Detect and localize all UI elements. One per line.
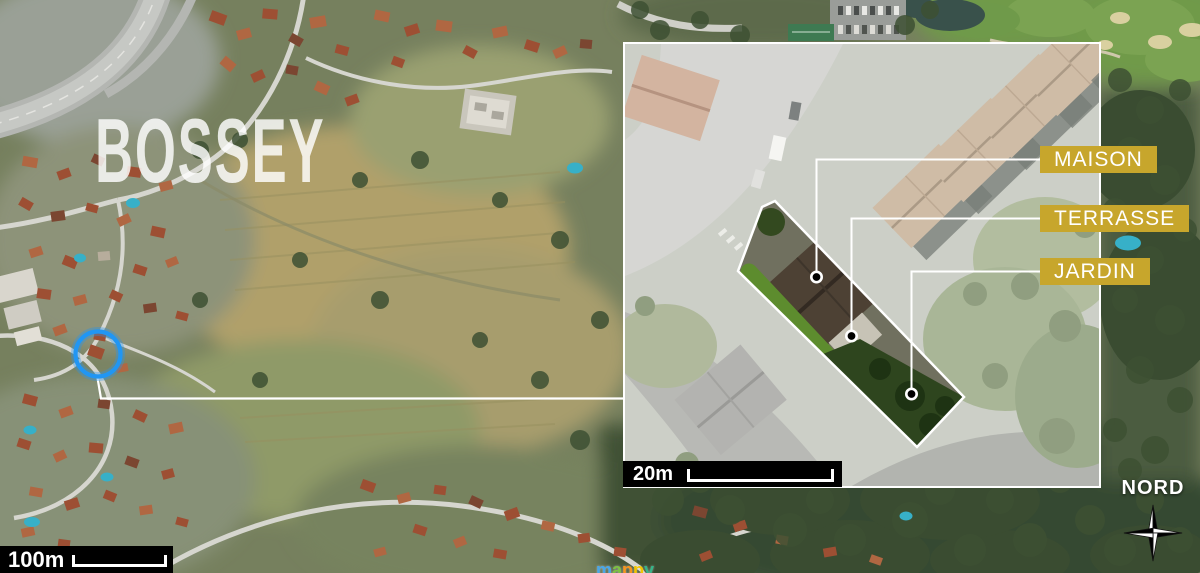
inset-scalebar-bracket [687,469,834,482]
north-label: NORD [1118,477,1188,500]
main-scalebar: 100m [0,546,173,573]
map-provider-watermark: mappy [596,561,654,573]
watermark-letter: a [612,560,622,573]
region-name: BOSSEY [95,106,325,197]
jardin-label-box: JARDIN [1040,258,1150,285]
compass: NORD [1118,477,1188,564]
aerial-map-canvas: BOSSEY MAISON TERRASSE JARDIN 100m 20m N… [0,0,1200,573]
terrasse-label: TERRASSE [1054,207,1175,231]
maison-label-box: MAISON [1040,146,1157,173]
terrasse-label-box: TERRASSE [1040,205,1189,232]
main-scalebar-bracket [72,555,167,567]
inset-map [623,42,1101,488]
maison-label: MAISON [1054,148,1143,172]
fade-overlay [625,44,1101,488]
watermark-letter: p [622,560,633,573]
watermark-letter: m [596,560,612,573]
inset-scalebar-label: 20m [633,463,673,486]
inset-satellite [625,44,1101,488]
compass-rose-icon [1121,502,1185,564]
jardin-label: JARDIN [1054,260,1136,284]
watermark-letter: y [644,560,654,573]
main-scalebar-label: 100m [8,547,64,573]
inset-scalebar: 20m [623,461,842,487]
watermark-letter: p [633,560,644,573]
